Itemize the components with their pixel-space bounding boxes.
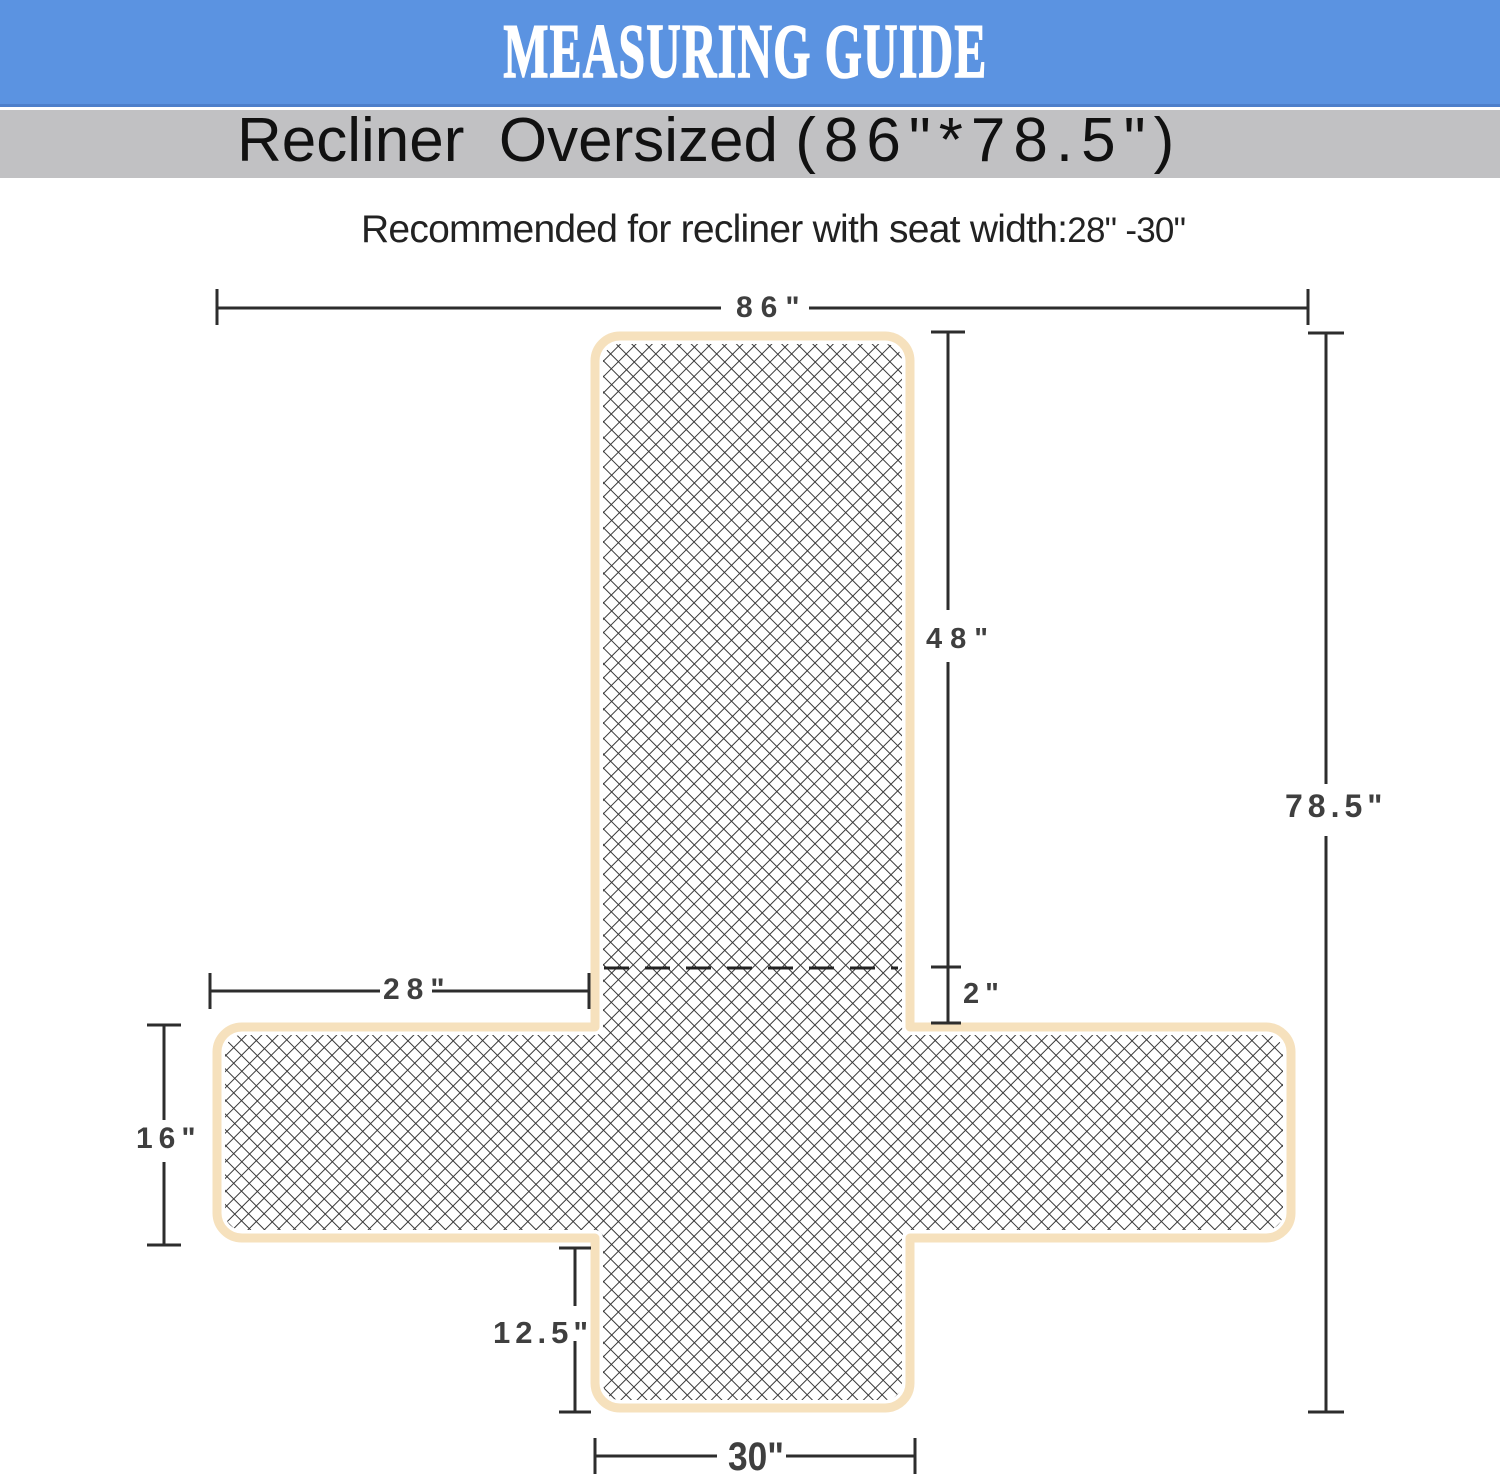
svg-text:28": 28" — [383, 973, 452, 1006]
svg-text:16": 16" — [136, 1122, 202, 1155]
svg-text:78.5": 78.5" — [1285, 788, 1387, 824]
svg-text:48": 48" — [926, 623, 996, 655]
svg-text:86": 86" — [736, 291, 808, 324]
svg-text:30": 30" — [728, 1435, 784, 1474]
svg-text:2": 2" — [963, 978, 1005, 1010]
svg-text:12.5": 12.5" — [493, 1315, 593, 1350]
